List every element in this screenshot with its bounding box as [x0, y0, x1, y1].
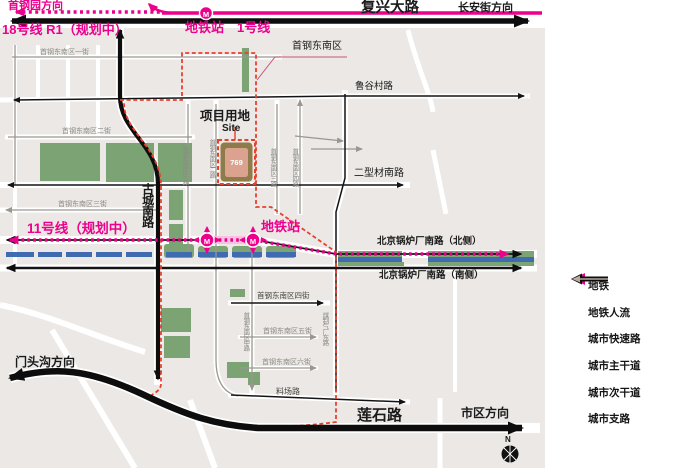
label-road-mid: 首钢东南区中路 — [241, 312, 248, 376]
label-line1: 1号线 — [237, 21, 270, 35]
label-line18: 18号线 R1（规划中） — [2, 23, 128, 37]
label-street5: 首钢东南区五街 — [263, 328, 312, 335]
branch-legend-arrow — [568, 272, 608, 286]
station-m-letter-west: M — [200, 237, 214, 246]
legend-item-branch: 城市支路 — [568, 405, 693, 432]
label-mentougou-direction: 门头沟方向 — [15, 356, 75, 369]
label-lianshi-road: 莲石路 — [357, 408, 402, 424]
site-number: 769 — [225, 158, 248, 167]
label-street4: 首钢东南区四街 — [257, 292, 310, 300]
compass-icon — [502, 446, 519, 463]
label-metro-station-mid: 地铁站 — [261, 220, 300, 234]
label-boiler-road-south: 北京锅炉厂南路（南侧） — [379, 271, 484, 281]
label-lugu-road: 鲁谷村路 — [355, 82, 393, 92]
label-line11: 11号线（规划中） — [27, 222, 136, 236]
label-boiler-road-north: 北京锅炉厂南路（北侧） — [377, 237, 482, 247]
label-road-v1: 首钢东南区一路 — [180, 146, 187, 192]
label-site-en: Site — [222, 124, 240, 135]
legend: 地铁 地铁人流 城市快速路 城市主干道 城市次干道 城市支路 — [568, 272, 693, 432]
label-shougang-direction: 首钢园方向 — [8, 1, 63, 13]
legend-label-metro-flow: 地铁人流 — [588, 305, 630, 320]
label-city-direction: 市区方向 — [461, 407, 509, 420]
label-shougang-se-district: 首钢东南区 — [292, 42, 342, 53]
legend-item-metro-flow: 地铁人流 — [568, 299, 693, 326]
legend-item-secondary: 城市次干道 — [568, 379, 693, 406]
label-changan-direction: 长安街方向 — [458, 3, 513, 15]
label-erxingcai-road: 二型材南路 — [354, 169, 404, 180]
label-gucheng-road: 古城南路 — [141, 183, 154, 263]
legend-label-secondary: 城市次干道 — [588, 385, 641, 400]
label-street1: 首钢东南区一街 — [40, 49, 89, 56]
label-road-v4: 首钢东南区四路 — [290, 148, 297, 196]
label-road-v3: 首钢东南区三路 — [268, 148, 275, 196]
legend-item-arterial: 城市主干道 — [568, 352, 693, 379]
label-metro-station-top: 地铁站 — [185, 21, 224, 35]
label-compass-n: N — [505, 436, 511, 444]
legend-label-branch: 城市支路 — [588, 411, 630, 426]
label-street3: 首钢东南区三街 — [58, 201, 107, 208]
station-m-letter-east: M — [246, 237, 260, 246]
label-meizhiqi-road: 煤制气厂东路 — [320, 312, 327, 378]
label-liaochang-road: 料场路 — [276, 388, 300, 396]
legend-item-expressway: 城市快速路 — [568, 325, 693, 352]
label-street2: 首钢东南区二街 — [62, 128, 111, 135]
label-street6: 首钢东南区六街 — [262, 359, 311, 366]
label-site-cn: 项目用地 — [200, 110, 250, 123]
station-m-letter-top: M — [199, 10, 213, 19]
site-analysis-map: 首钢园方向 18号线 R1（规划中） 地铁站 1号线 复兴大路 长安街方向 首钢… — [0, 0, 693, 468]
legend-label-expressway: 城市快速路 — [588, 331, 641, 346]
label-fuxing-avenue: 复兴大路 — [361, 1, 419, 16]
legend-label-arterial: 城市主干道 — [588, 358, 641, 373]
label-road-v2: 首钢东南区二路 — [207, 139, 214, 187]
